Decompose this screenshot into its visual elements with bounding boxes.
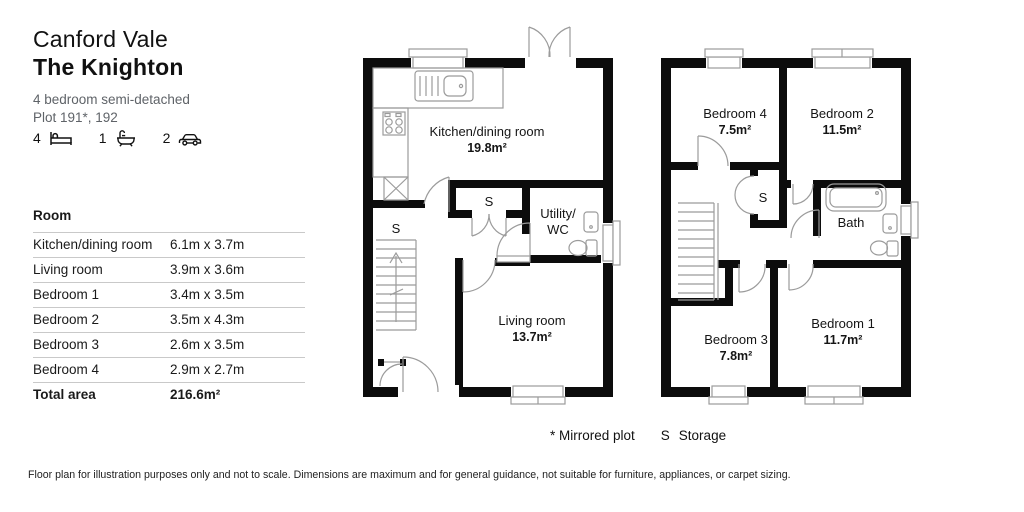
bed2-label: Bedroom 2: [810, 106, 874, 121]
french-doors: [529, 27, 570, 57]
bathtub: [826, 184, 886, 211]
bed2-area: 11.5m²: [823, 123, 862, 137]
bath-label: Bath: [838, 215, 865, 230]
storage-key: S: [661, 428, 670, 443]
bed4-window: [705, 49, 743, 68]
utility-window: [603, 221, 620, 265]
bed1-door: [789, 264, 813, 290]
bed3-label: Bedroom 3: [704, 332, 768, 347]
bed3-window: [709, 386, 748, 404]
sink: [415, 71, 473, 101]
bed4-area: 7.5m²: [719, 123, 752, 137]
utility-label-line2: WC: [547, 222, 569, 237]
storage-closet-label: S: [485, 194, 494, 209]
basin: [584, 212, 598, 232]
first-storage-label: S: [759, 190, 768, 205]
first-floor-plan: Bedroom 4 7.5m² Bedroom 2 11.5m² S Bath …: [661, 49, 918, 404]
living-label: Living room: [498, 313, 565, 328]
hob: [383, 112, 405, 135]
ground-walls: [363, 58, 613, 397]
storage-key-label: Storage: [679, 428, 726, 443]
utility-label-line1: Utility/: [540, 206, 576, 221]
floorplan-page: Canford Vale The Knighton 4 bedroom semi…: [0, 0, 1024, 512]
bed4-label: Bedroom 4: [703, 106, 767, 121]
landing-storage-doors: [735, 176, 754, 214]
appliance-space: [384, 177, 408, 200]
disclaimer-text: Floor plan for illustration purposes onl…: [28, 469, 791, 481]
storage-double-doors: [472, 214, 506, 236]
mirrored-plot-note: * Mirrored plot: [550, 428, 635, 443]
bed1-area: 11.7m²: [824, 333, 863, 347]
bed4-door: [698, 136, 728, 166]
living-window: [511, 386, 565, 404]
bed2-door: [793, 184, 813, 204]
kitchen-label: Kitchen/dining room: [430, 124, 545, 139]
toilet: [569, 240, 597, 256]
plan-legend: * Mirrored plot S Storage: [550, 428, 726, 443]
understairs-storage-label: S: [392, 221, 401, 236]
bed1-label: Bedroom 1: [811, 316, 875, 331]
kitchen-window: [409, 49, 467, 68]
bed1-window: [805, 386, 863, 404]
living-door: [463, 260, 495, 292]
stairs: [376, 240, 416, 330]
floorplan-drawing: Kitchen/dining room 19.8m² S S Utility/ …: [0, 0, 1024, 512]
bath-window: [901, 202, 918, 238]
bath-toilet: [871, 241, 899, 256]
bed2-window: [812, 49, 873, 68]
bed3-door: [739, 264, 765, 292]
kitchen-area: 19.8m²: [467, 141, 507, 155]
ground-floor-plan: Kitchen/dining room 19.8m² S S Utility/ …: [363, 27, 620, 404]
bath-basin: [883, 214, 897, 233]
bed3-area: 7.8m²: [720, 349, 753, 363]
first-stairs: [678, 203, 718, 300]
kitchen-door: [424, 177, 449, 212]
living-area: 13.7m²: [512, 330, 552, 344]
